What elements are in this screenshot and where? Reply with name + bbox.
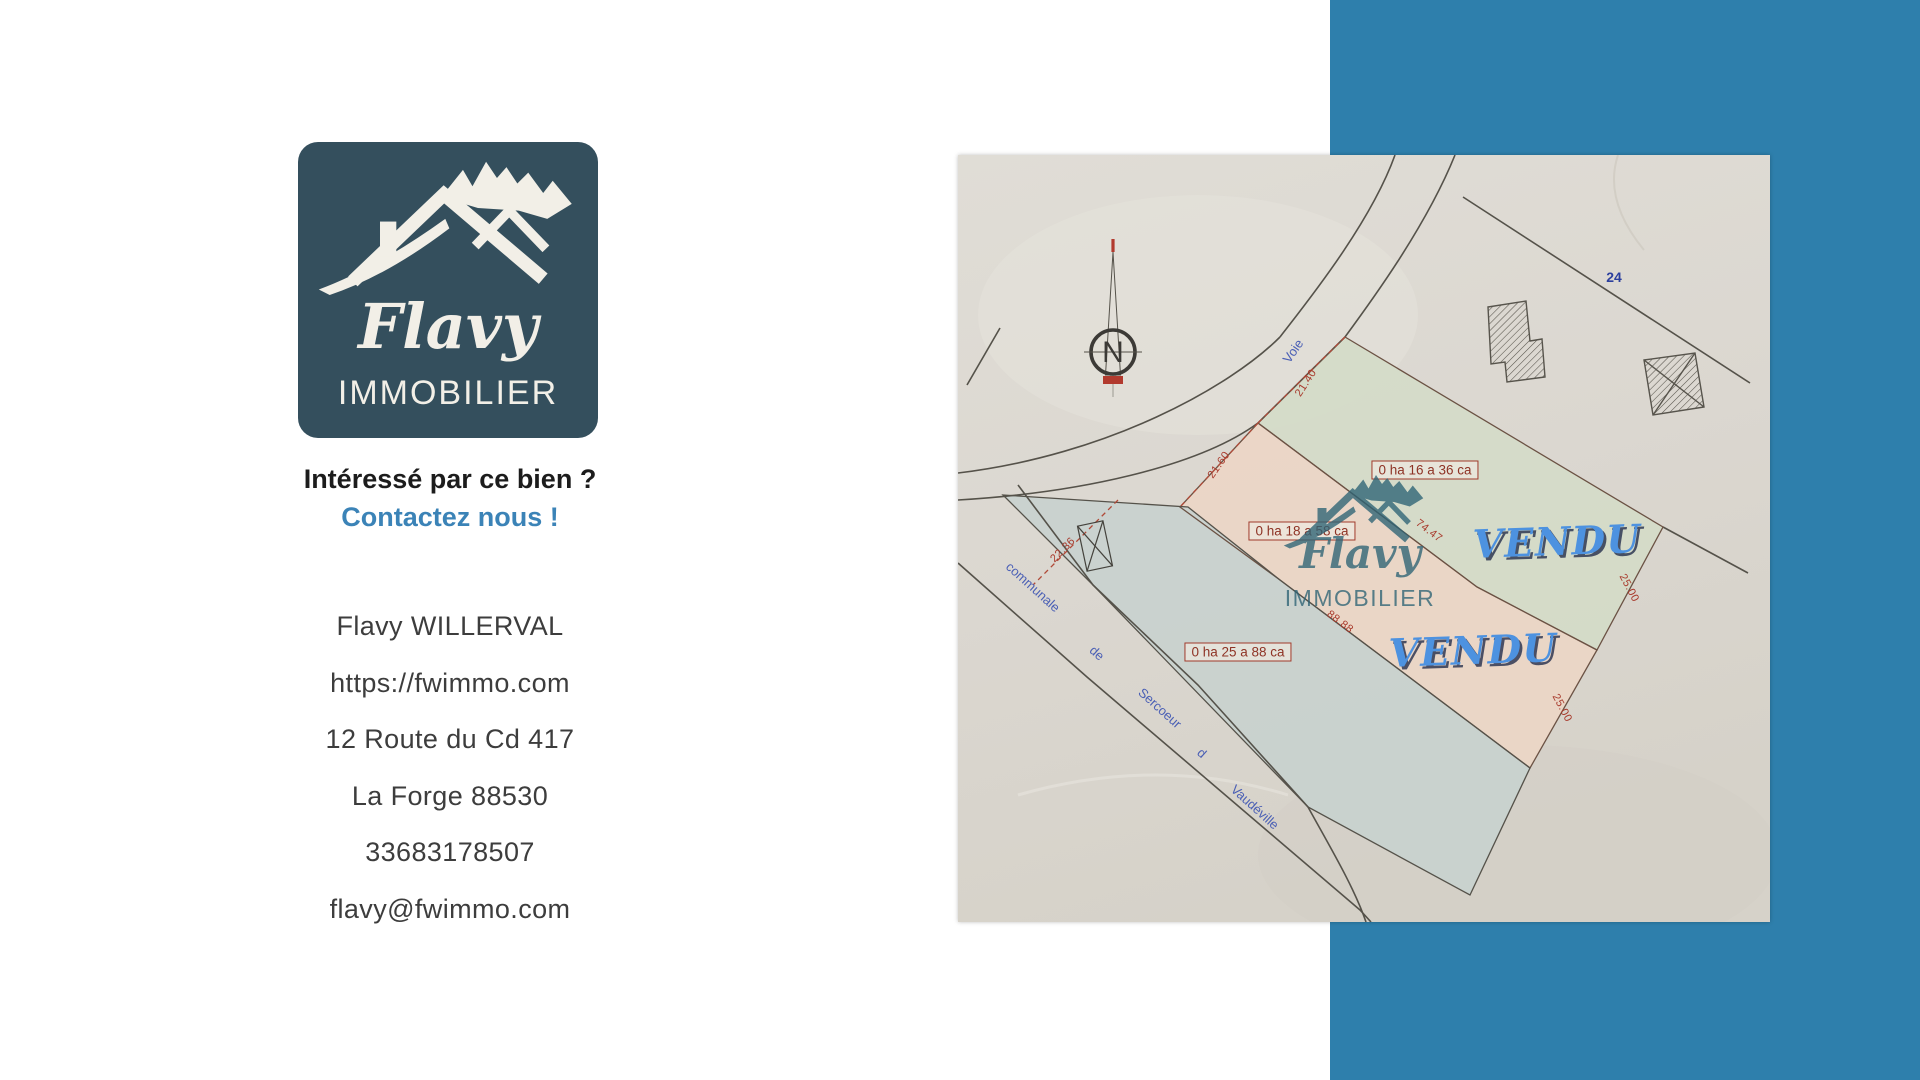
agency-email: flavy@fwimmo.com: [0, 881, 900, 938]
agency-city: La Forge 88530: [0, 768, 900, 825]
interest-question: Intéressé par ce bien ?: [0, 464, 900, 495]
agency-website: https://fwimmo.com: [0, 655, 900, 712]
contact-block: Flavy WILLERVAL https://fwimmo.com 12 Ro…: [0, 598, 900, 937]
watermark-brand-type: IMMOBILIER: [1280, 585, 1440, 612]
cadastral-plan-photo: N 24 Voie communale de Sercoeur d Vaudév…: [958, 155, 1770, 922]
agent-name: Flavy WILLERVAL: [0, 598, 900, 655]
sold-stamp-lower: VENDU: [1388, 625, 1558, 677]
area-label-blue-parcel: 0 ha 25 a 88 ca: [1184, 643, 1291, 662]
agency-logo: Flavy IMMOBILIER: [298, 142, 598, 438]
flyer-left-panel: Flavy IMMOBILIER Intéressé par ce bien ?…: [0, 0, 900, 1080]
agency-street: 12 Route du Cd 417: [0, 711, 900, 768]
north-letter: N: [1102, 336, 1124, 370]
contact-us-cta: Contactez nous !: [0, 502, 900, 533]
watermark-brand-name: Flavy: [1280, 529, 1440, 578]
watermark-logo: Flavy IMMOBILIER: [1280, 471, 1440, 616]
logo-brand-name: Flavy: [298, 290, 598, 363]
logo-brand-type: IMMOBILIER: [298, 374, 598, 413]
parcel-number: 24: [1606, 269, 1622, 285]
logo-mountain-house-icon: [312, 152, 584, 302]
agency-phone: 33683178507: [0, 824, 900, 881]
sold-stamp-upper: VENDU: [1472, 516, 1642, 568]
